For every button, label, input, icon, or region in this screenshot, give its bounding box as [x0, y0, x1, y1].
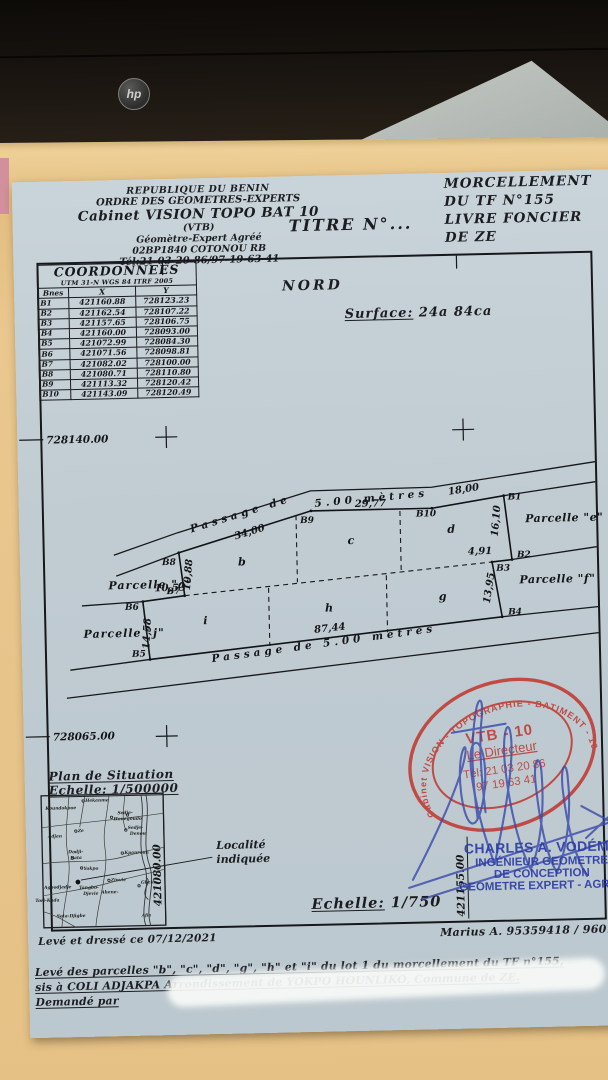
- label-B5: B5: [131, 650, 146, 660]
- map-place-label: Koundokpoe: [44, 806, 76, 812]
- main-scale-label: Echelle:: [311, 894, 385, 913]
- parcel-f: Parcelle "f": [518, 572, 595, 587]
- map-place-label: Zinvie: [110, 878, 126, 883]
- map-place-label: Tori-Kada: [35, 898, 59, 904]
- dim-34: 34,00: [233, 523, 266, 543]
- parcel-e: Parcelle "e": [524, 511, 604, 526]
- parcel-i: i: [203, 614, 207, 627]
- grid-label-tick-top: [19, 440, 43, 441]
- map-place-label: Djevie: [82, 892, 99, 897]
- parcel-g: g: [439, 590, 447, 603]
- director-stamp: Cabinet VISION - TOPOGRAPHIE - BATIMENT …: [388, 653, 608, 856]
- divider-b-c: [296, 515, 297, 582]
- dim-87-44: 87,44: [314, 621, 346, 635]
- divider-c-d: [400, 511, 401, 573]
- map-place-label: Sedje-: [128, 826, 144, 831]
- label-B6: B6: [124, 603, 140, 613]
- locality-note: Localité indiquée: [216, 838, 270, 867]
- label-B9: B9: [299, 516, 315, 526]
- geometer-stamp-block: CHARLES A. VODÉME INGÉNIEUR GEOMETRE DE …: [450, 837, 608, 894]
- map-place-label: Ze: [77, 829, 84, 834]
- grid-label-728065: 728065.00: [53, 730, 116, 743]
- locality-note-line1: Localité: [216, 838, 270, 853]
- divider-i-h: [269, 588, 270, 646]
- map-place-label: Yokpo: [84, 867, 99, 872]
- geometer-name: CHARLES A. VODÉME: [450, 837, 608, 857]
- label-B10: B10: [415, 509, 437, 519]
- hp-logo-icon: hp: [118, 78, 150, 110]
- label-B8: B8: [161, 558, 177, 568]
- label-B3: B3: [495, 564, 510, 574]
- bottom-road-upper-ext: [70, 659, 150, 670]
- map-place-label: Hekanme: [84, 798, 109, 804]
- parcel-d: d: [447, 523, 455, 536]
- map-place-label: Bata: [69, 856, 82, 861]
- pink-paper-edge: [0, 158, 9, 214]
- locality-note-line2: indiquée: [216, 852, 270, 867]
- grid-label-728140: 728140.00: [46, 433, 109, 446]
- main-scale: Echelle: 1/750: [311, 893, 441, 913]
- label-B1: B1: [507, 492, 522, 502]
- parcel-h: h: [325, 601, 333, 614]
- survey-document: REPUBLIQUE DU BENIN ORDRE DES GEOMETRES-…: [12, 168, 608, 1038]
- map-place-label: Denou: [129, 832, 146, 837]
- map-place-label: Tangbo-: [79, 886, 99, 891]
- grid-label-421080: 421080.00: [151, 843, 164, 906]
- label-B2: B2: [516, 550, 531, 560]
- lot-boundary: [141, 496, 514, 660]
- parcel-a: Parcelle "a": [107, 577, 193, 592]
- footer-paragraph-line3: Demandé par: [35, 994, 118, 1009]
- situation-map: KoundokpoeHekanmeSedje-HouegoudoZeAdjanS…: [33, 792, 214, 928]
- laptop-seam: [0, 48, 608, 59]
- map-place-label: Houegoudo: [113, 817, 142, 823]
- locality-dot: [75, 880, 80, 885]
- map-place-label: Ahene-: [100, 890, 118, 895]
- map-place-label: Adjan: [47, 834, 62, 839]
- parcel-b: b: [238, 555, 246, 568]
- plan-drawing: 728140.00 728065.00 421080.00 421155.00: [12, 168, 608, 1038]
- parcel-j: Parcelle "j": [82, 626, 164, 641]
- main-scale-value: 1/750: [391, 893, 442, 911]
- dim-16-10: 16,10: [490, 505, 504, 537]
- situation-map-labels: KoundokpoeHekanmeSedje-HouegoudoZeAdjanS…: [33, 797, 157, 921]
- grid-marks: [15, 255, 484, 928]
- boundary-point-marks: [139, 494, 515, 661]
- photo-of-survey-document: hp REPUBLIQUE DU BENIN ORDRE DES GEOMETR…: [0, 0, 608, 1080]
- dim-13-95: 13,95: [482, 572, 498, 605]
- situation-scale: Echelle: 1/500000: [49, 781, 179, 798]
- parcel-c: c: [347, 534, 354, 547]
- map-place-label: Afia: [141, 913, 152, 918]
- map-place-label: Gbeko: [141, 880, 157, 885]
- dim-4-91: 4,91: [468, 546, 493, 558]
- label-B4: B4: [507, 607, 522, 617]
- grid-label-tick-bottom: [26, 737, 50, 738]
- divider-h-g: [386, 575, 387, 632]
- map-place-label: Dodji-: [67, 850, 83, 855]
- map-place-label: Sota-Djigbe: [57, 914, 86, 920]
- map-place-label: Agbodjedje: [43, 885, 72, 891]
- map-place-label: Kpanroun: [123, 851, 149, 857]
- map-place-label: Sedje-: [117, 811, 133, 816]
